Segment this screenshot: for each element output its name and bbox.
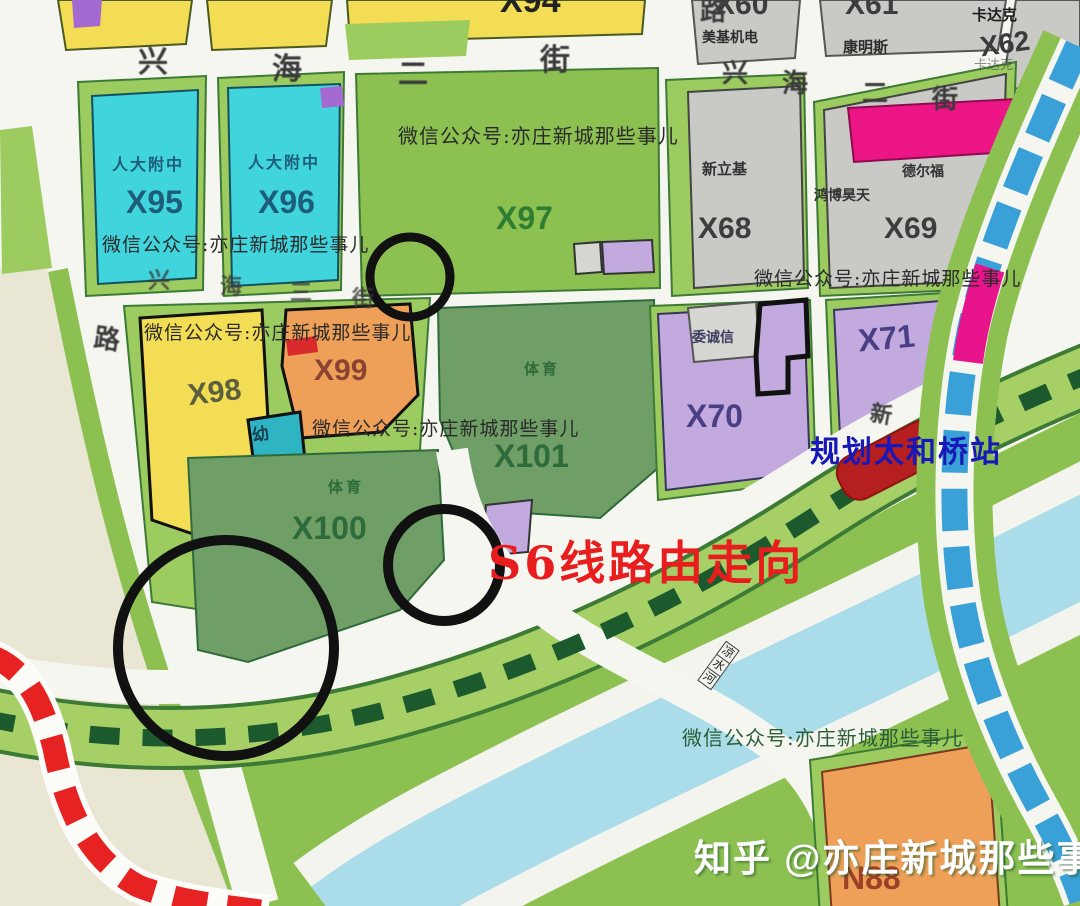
- parcel-label-x61: X61: [845, 0, 898, 20]
- parcel-sublabel-x100: 体育: [328, 480, 364, 495]
- street-xinghai2-right-char1: 兴: [722, 60, 748, 86]
- parcel-label-x101: X101: [494, 440, 569, 472]
- s6-route-title: S6线路由走向: [488, 540, 804, 586]
- street-xinghai2-left-char2: 海: [272, 55, 302, 85]
- parcel-label-x60: X60: [715, 0, 768, 20]
- parcel-sublabel-x70: 委诚信: [692, 330, 734, 344]
- street-xinghai2-right-char4: 街: [932, 86, 958, 112]
- parcel-label-x100: X100: [292, 512, 367, 544]
- planning-map: X94 路 X60 美基机电 X61 康明斯 卡达克 X62 卡达克 兴 海 二…: [0, 0, 1080, 906]
- watermark-zhihu: 知乎 @亦庄新城那些事儿: [694, 840, 1080, 877]
- street-xinghai2-left-char3: 二: [398, 60, 428, 90]
- parcel-label-x99: X99: [314, 356, 367, 386]
- parcel-label-kindergarten: 幼: [251, 425, 271, 445]
- parcel-sublabel2-x62: 卡达克: [974, 58, 1013, 71]
- watermark-wechat-2: 微信公众号:亦庄新城那些事儿: [102, 236, 369, 255]
- parcel-label-x70: X70: [686, 400, 743, 432]
- parcel-label-x68: X68: [698, 214, 751, 244]
- watermark-wechat-1: 微信公众号:亦庄新城那些事儿: [398, 126, 679, 146]
- parcel-sublabel-x68: 新立基: [702, 162, 747, 177]
- parcel-sublabel-x101: 体育: [524, 362, 560, 377]
- parcel-label-x69: X69: [884, 214, 937, 244]
- parcel-sublabel2-x69: 德尔福: [902, 164, 944, 178]
- parcel-sublabel-x96: 人大附中: [248, 156, 320, 172]
- parcel-x68: [688, 86, 804, 288]
- parcel-x97-purple-sub: [602, 240, 654, 274]
- parcel-sublabel-x69: 鸿博昊天: [814, 188, 870, 202]
- street-xinghai3-char1: 兴: [148, 270, 170, 292]
- parcel-sublabel-x61: 康明斯: [843, 40, 888, 55]
- street-label-lu-left: 路: [92, 324, 121, 353]
- parcel-label-x98: X98: [186, 375, 243, 411]
- parcel-topleft-yellow-2: [207, 0, 332, 50]
- watermark-wechat-3: 微信公众号:亦庄新城那些事儿: [144, 324, 411, 343]
- parcel-label-x94: X94: [500, 0, 561, 18]
- parcel-label-x97: X97: [496, 202, 553, 234]
- watermark-wechat-4: 微信公众号:亦庄新城那些事儿: [312, 420, 579, 439]
- street-xinghai3-char4: 街: [352, 288, 374, 310]
- street-xinghai3-char2: 海: [220, 276, 242, 298]
- street-xinghai2-right-char2: 海: [782, 70, 808, 96]
- parcel-label-x95: X95: [126, 186, 183, 218]
- parcel-label-x71: X71: [857, 320, 917, 357]
- parcel-x97-gray-sub: [574, 242, 602, 274]
- parcel-topleft-purple: [72, 0, 102, 28]
- street-xinghai2-left-char4: 街: [540, 46, 570, 76]
- parcel-sublabel-x62: 卡达克: [972, 8, 1017, 23]
- street-label-xin: 新: [868, 402, 894, 427]
- street-xinghai2-right-char3: 二: [862, 80, 888, 106]
- parcel-sublabel-x95: 人大附中: [112, 158, 184, 174]
- parcel-x94-green-sub: [345, 20, 470, 60]
- planned-station-label: 规划太和桥站: [810, 438, 1002, 468]
- street-xinghai2-left-char1: 兴: [138, 48, 168, 78]
- parcel-sublabel-x60: 美基机电: [702, 30, 758, 44]
- watermark-wechat-5: 微信公众号:亦庄新城那些事儿: [754, 270, 1021, 289]
- street-xinghai3-char3: 三: [290, 282, 312, 304]
- watermark-wechat-6: 微信公众号:亦庄新城那些事儿: [682, 728, 963, 748]
- parcel-label-x96: X96: [258, 186, 315, 218]
- parcel-x96-purple-corner: [320, 86, 344, 108]
